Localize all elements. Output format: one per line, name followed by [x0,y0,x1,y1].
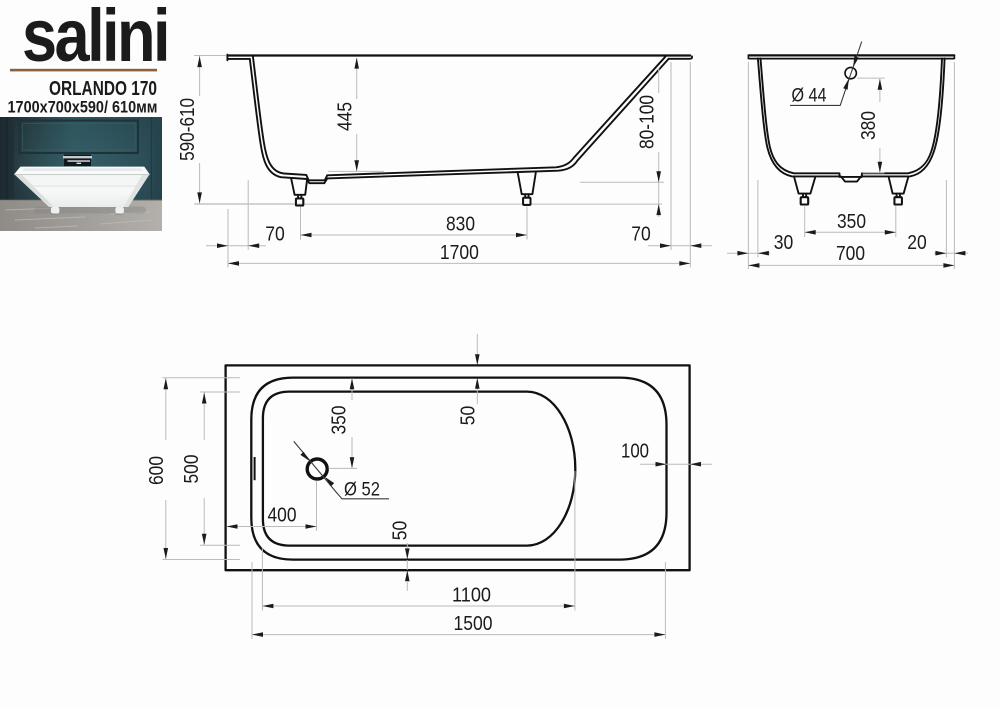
svg-text:70: 70 [265,223,285,245]
svg-text:salini: salini [22,0,168,77]
svg-text:600: 600 [146,456,168,485]
svg-text:700: 700 [836,243,865,265]
svg-text:30: 30 [774,232,794,254]
svg-text:400: 400 [268,505,297,527]
svg-text:50: 50 [390,521,412,541]
svg-text:590-610: 590-610 [177,98,199,161]
svg-text:350: 350 [329,406,351,435]
svg-text:50: 50 [458,406,480,426]
svg-text:100: 100 [621,441,649,463]
svg-text:1500: 1500 [454,613,493,635]
svg-text:80-100: 80-100 [637,95,659,149]
svg-text:1700x700x590/ 610мм: 1700x700x590/ 610мм [8,98,158,116]
svg-text:445: 445 [335,102,357,131]
svg-text:500: 500 [181,455,203,484]
svg-text:20: 20 [907,232,927,254]
svg-text:350: 350 [837,211,866,233]
svg-text:Ø 52: Ø 52 [344,479,380,501]
svg-text:1100: 1100 [452,584,491,606]
svg-text:830: 830 [446,214,475,236]
svg-text:70: 70 [631,223,651,245]
svg-text:1700: 1700 [440,242,479,264]
svg-text:ORLANDO 170: ORLANDO 170 [49,77,157,100]
svg-text:Ø 44: Ø 44 [792,85,827,107]
svg-text:380: 380 [858,111,880,140]
